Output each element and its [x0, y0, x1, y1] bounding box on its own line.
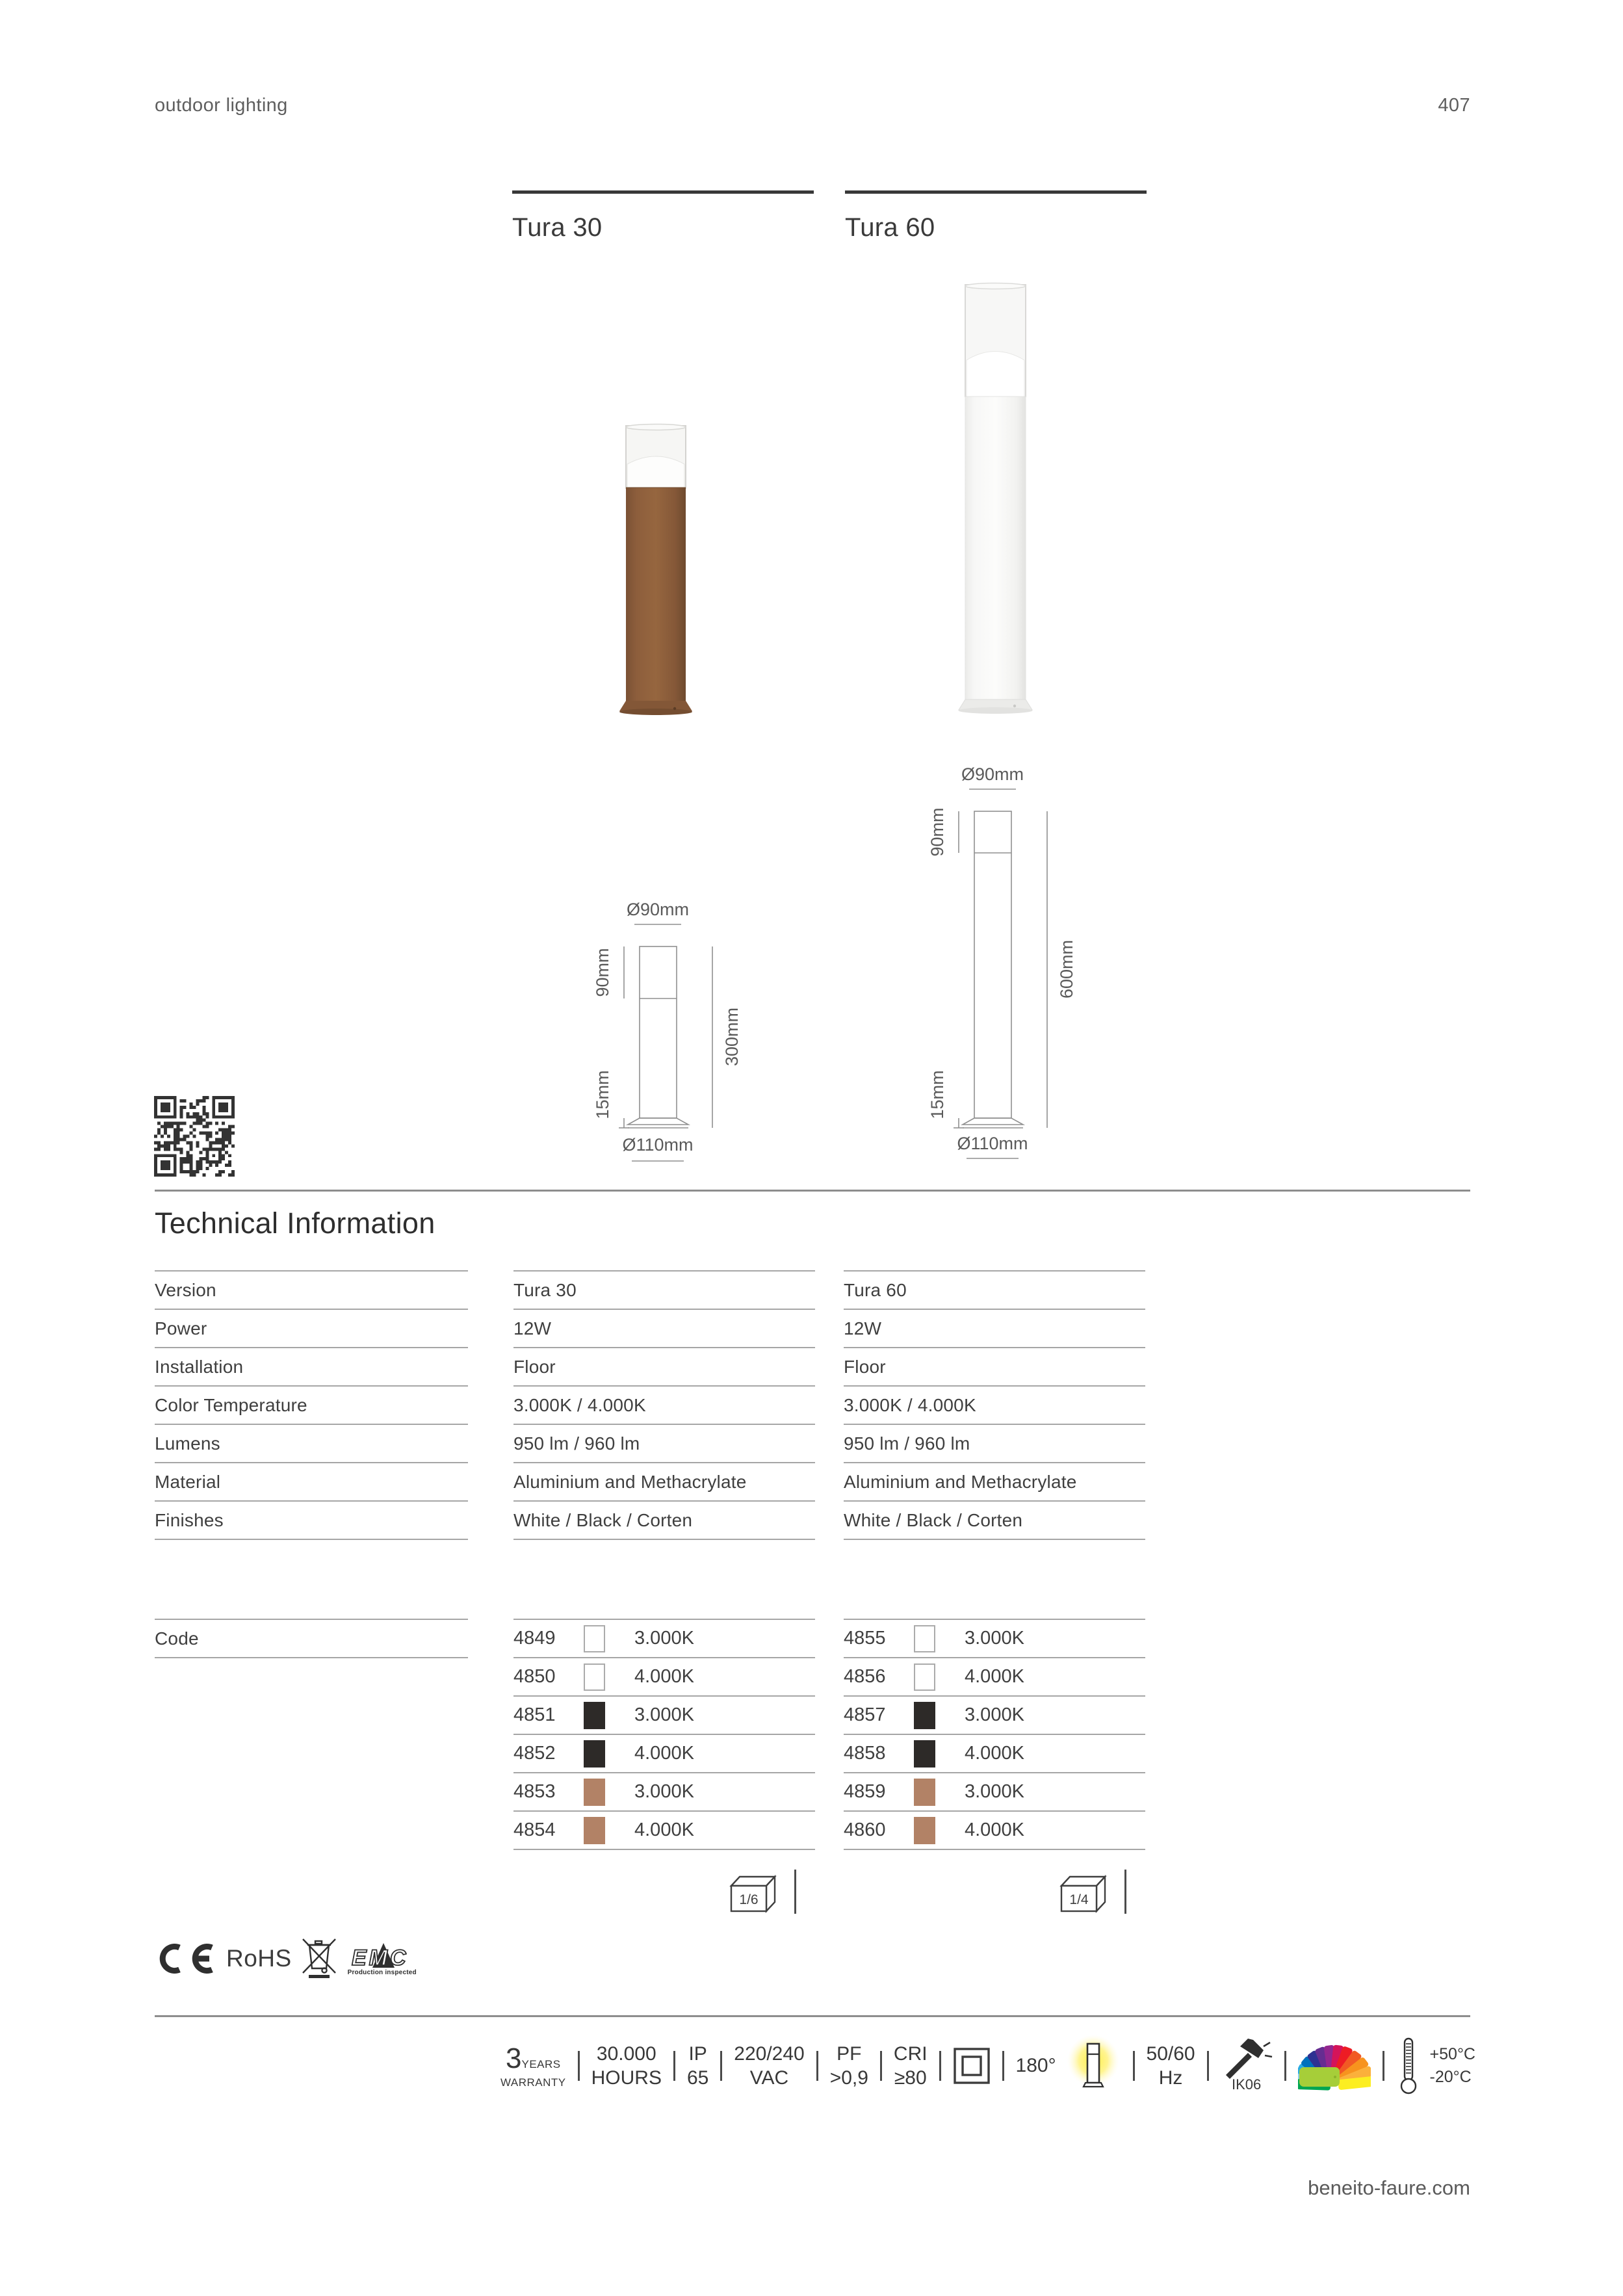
spec-value-text: Aluminium and Methacrylate: [844, 1472, 1076, 1493]
dim-height-tura30: 300mm: [722, 1008, 742, 1066]
spec-value-text: Tura 60: [844, 1280, 907, 1301]
spec-value-text: Aluminium and Methacrylate: [513, 1472, 746, 1493]
code-row: 4859 3.000K: [844, 1772, 1145, 1810]
badge-separator: [578, 2051, 580, 2081]
finish-swatch: [914, 1702, 935, 1729]
dim-height-tura60: 600mm: [1057, 940, 1076, 998]
badge-separator: [816, 2051, 818, 2081]
finish-swatch: [584, 1817, 605, 1844]
ral-color-fan-icon: [1298, 2039, 1371, 2093]
spec-label-text: Finishes: [155, 1510, 224, 1531]
power-factor-badge: PF >0,9: [830, 2042, 868, 2090]
code-label-column: Code: [155, 1619, 468, 1658]
finish-swatch: [584, 1740, 605, 1768]
badge-separator: [1207, 2051, 1209, 2081]
code-row: 4858 4.000K: [844, 1734, 1145, 1772]
code-row: 4850 4.000K: [513, 1657, 815, 1695]
code-row: 4856 4.000K: [844, 1657, 1145, 1695]
spec-value-text: 3.000K / 4.000K: [844, 1395, 976, 1416]
voltage-label: VAC: [734, 2066, 804, 2090]
code-number: 4857: [844, 1704, 914, 1726]
spec-label-material: Material: [155, 1462, 468, 1500]
spec-value: Tura 60: [844, 1270, 1145, 1309]
dimension-drawing-tura30: Ø90mm 90mm 300mm 15mm Ø110mm: [585, 889, 767, 1169]
code-temp: 3.000K: [634, 1704, 694, 1726]
qr-code-icon: [154, 1096, 235, 1177]
warranty-years: 3: [506, 2042, 521, 2074]
code-number: 4855: [844, 1628, 914, 1649]
dim-base-tura60: 15mm: [928, 1070, 947, 1119]
spec-value: 3.000K / 4.000K: [513, 1385, 815, 1424]
spec-value-text: White / Black / Corten: [844, 1510, 1022, 1531]
badge-separator: [1133, 2051, 1135, 2081]
code-temp: 3.000K: [965, 1781, 1024, 1803]
spec-label-text: Power: [155, 1318, 207, 1339]
ce-mark-icon: [155, 1943, 216, 1974]
code-row: 4849 3.000K: [513, 1619, 815, 1657]
warranty-badge: 3YEARS WARRANTY: [500, 2042, 566, 2089]
hours-value: 30.000: [591, 2042, 662, 2066]
spec-label-text: Lumens: [155, 1433, 220, 1454]
spec-value-text: 3.000K / 4.000K: [513, 1395, 646, 1416]
ip-label: IP: [687, 2042, 708, 2066]
product-title-tura30: Tura 30: [512, 213, 602, 242]
warranty-label: WARRANTY: [500, 2076, 566, 2089]
code-temp: 3.000K: [965, 1704, 1024, 1726]
product-photo-tura60: [957, 281, 1034, 718]
finish-swatch: [584, 1625, 605, 1652]
lifetime-badge: 30.000 HOURS: [591, 2042, 662, 2090]
finish-swatch: [914, 1663, 935, 1691]
ip-badge: IP 65: [687, 2042, 708, 2090]
emc-subtext: Production inspected: [348, 1969, 417, 1976]
spec-label-version: Version: [155, 1270, 468, 1309]
badge-separator: [880, 2051, 882, 2081]
thermometer-icon: [1396, 2036, 1422, 2096]
breadcrumb-category: outdoor lighting: [155, 95, 288, 116]
hours-label: HOURS: [591, 2066, 662, 2090]
code-temp: 3.000K: [634, 1628, 694, 1649]
spec-label-lumens: Lumens: [155, 1424, 468, 1462]
finish-swatch: [584, 1779, 605, 1806]
emc-logo: EMC Production inspected: [346, 1942, 418, 1976]
ik-value: IK06: [1232, 2076, 1261, 2093]
dim-top-diameter-tura30: Ø90mm: [627, 900, 689, 919]
code-number: 4849: [513, 1628, 584, 1649]
code-number: 4859: [844, 1781, 914, 1803]
code-number: 4851: [513, 1704, 584, 1726]
dim-base-diameter-tura30: Ø110mm: [622, 1135, 693, 1155]
spec-label-color-temperature: Color Temperature: [155, 1385, 468, 1424]
spec-value-text: 12W: [513, 1318, 551, 1339]
spec-value: Aluminium and Methacrylate: [844, 1462, 1145, 1500]
spec-value: Floor: [844, 1347, 1145, 1385]
pf-value: >0,9: [830, 2066, 868, 2090]
spec-value-text: White / Black / Corten: [513, 1510, 692, 1531]
pf-label: PF: [830, 2042, 868, 2066]
spec-label-text: Color Temperature: [155, 1395, 307, 1416]
cri-value: ≥80: [894, 2066, 928, 2090]
warranty-years-label: YEARS: [522, 2058, 561, 2070]
beam-angle-badge: 180°: [1016, 2035, 1121, 2097]
section-title: Technical Information: [155, 1207, 435, 1240]
finish-swatch: [914, 1817, 935, 1844]
bollard-glow-icon: [1065, 2035, 1121, 2097]
product-photo-tura30: [617, 423, 694, 718]
code-row: 4851 3.000K: [513, 1695, 815, 1734]
spec-value: Tura 30: [513, 1270, 815, 1309]
spec-label-column: Version Power Installation Color Tempera…: [155, 1270, 468, 1540]
spec-value-text: 950 lm / 960 lm: [844, 1433, 970, 1454]
ip-value: 65: [687, 2066, 708, 2090]
spec-value: 950 lm / 960 lm: [844, 1424, 1145, 1462]
voltage-value: 220/240: [734, 2042, 804, 2066]
beam-angle-value: 180°: [1016, 2055, 1056, 2077]
finish-swatch: [914, 1740, 935, 1768]
spec-value: White / Black / Corten: [844, 1500, 1145, 1539]
pack-divider-bar: [794, 1870, 796, 1914]
code-row: 4855 3.000K: [844, 1619, 1145, 1657]
temp-max: +50°C: [1430, 2043, 1475, 2066]
badge-separator: [720, 2051, 722, 2081]
finish-swatch: [584, 1702, 605, 1729]
ik-badge: IK06: [1221, 2039, 1273, 2093]
product-title-tura60: Tura 60: [845, 213, 935, 242]
code-table-tura60: 4855 3.000K 4856 4.000K 4857 3.000K 4858…: [844, 1619, 1145, 1850]
code-number: 4853: [513, 1781, 584, 1803]
code-temp: 4.000K: [634, 1743, 694, 1764]
title-rule-tura30: [512, 190, 814, 194]
section-divider-bottom: [155, 2015, 1470, 2017]
certifications-row: RoHS EMC Production inspected: [155, 1937, 418, 1980]
page-number: 407: [1321, 95, 1470, 116]
spec-value: White / Black / Corten: [513, 1500, 815, 1539]
code-row: 4852 4.000K: [513, 1734, 815, 1772]
badge-separator: [673, 2051, 675, 2081]
spec-label-text: Version: [155, 1280, 216, 1301]
spec-values-tura60: Tura 60 12W Floor 3.000K / 4.000K 950 lm…: [844, 1270, 1145, 1540]
spec-value-text: Floor: [844, 1357, 886, 1377]
badge-separator: [1284, 2051, 1286, 2081]
pack-divider-bar: [1124, 1870, 1126, 1914]
cri-label: CRI: [894, 2042, 928, 2066]
spec-value: 950 lm / 960 lm: [513, 1424, 815, 1462]
code-row: 4857 3.000K: [844, 1695, 1145, 1734]
cri-badge: CRI ≥80: [894, 2042, 928, 2090]
code-temp: 4.000K: [965, 1743, 1024, 1764]
code-temp: 4.000K: [965, 1820, 1024, 1841]
spec-value: 12W: [513, 1309, 815, 1347]
website-url: beneito-faure.com: [1145, 2176, 1470, 2200]
section-divider-top: [155, 1190, 1470, 1192]
package-box-icon-tura60: 1/4: [1059, 1875, 1110, 1914]
code-row: 4853 3.000K: [513, 1772, 815, 1810]
code-temp: 3.000K: [965, 1628, 1024, 1649]
dim-head-tura30: 90mm: [593, 948, 612, 997]
impact-hammer-icon: [1221, 2039, 1273, 2079]
catalog-page: outdoor lighting 407 Tura 30 Tura 60: [0, 0, 1623, 2296]
code-number: 4856: [844, 1666, 914, 1688]
spec-value: Aluminium and Methacrylate: [513, 1462, 815, 1500]
dim-base-diameter-tura60: Ø110mm: [957, 1134, 1028, 1153]
frequency-value: 50/60: [1147, 2042, 1195, 2066]
badge-separator: [1383, 2051, 1384, 2081]
operating-temperature-badge: +50°C -20°C: [1396, 2036, 1475, 2096]
code-table-tura30: 4849 3.000K 4850 4.000K 4851 3.000K 4852…: [513, 1619, 815, 1850]
temp-min: -20°C: [1430, 2066, 1475, 2089]
badge-separator: [939, 2051, 941, 2081]
spec-label-finishes: Finishes: [155, 1500, 468, 1539]
spec-value: Floor: [513, 1347, 815, 1385]
spec-value-text: Floor: [513, 1357, 556, 1377]
pack-ratio-tura60: 1/4: [1069, 1892, 1089, 1907]
package-box-icon-tura30: 1/6: [729, 1875, 780, 1914]
code-number: 4850: [513, 1666, 584, 1688]
dim-head-tura60: 90mm: [928, 807, 947, 856]
frequency-unit: Hz: [1147, 2066, 1195, 2090]
feature-badges-strip: 3YEARS WARRANTY 30.000 HOURS IP 65 220/2…: [500, 2031, 1475, 2101]
code-temp: 4.000K: [965, 1666, 1024, 1688]
frequency-badge: 50/60 Hz: [1147, 2042, 1195, 2090]
temperature-range: +50°C -20°C: [1430, 2043, 1475, 2089]
spec-label-text: Installation: [155, 1357, 243, 1377]
code-label-text: Code: [155, 1628, 199, 1649]
badge-separator: [1002, 2051, 1004, 2081]
weee-bin-icon: [302, 1938, 336, 1979]
dimension-drawing-tura60: Ø90mm 90mm 600mm 15mm Ø110mm: [920, 754, 1115, 1165]
dim-top-diameter-tura60: Ø90mm: [961, 764, 1024, 784]
spec-value: 3.000K / 4.000K: [844, 1385, 1145, 1424]
spec-label-power: Power: [155, 1309, 468, 1347]
spec-label-installation: Installation: [155, 1347, 468, 1385]
code-label-row: Code: [155, 1619, 468, 1657]
rohs-label: RoHS: [226, 1945, 292, 1972]
finish-swatch: [914, 1625, 935, 1652]
code-row: 4860 4.000K: [844, 1810, 1145, 1849]
finish-swatch: [914, 1779, 935, 1806]
title-rule-tura60: [845, 190, 1147, 194]
code-number: 4852: [513, 1743, 584, 1764]
voltage-badge: 220/240 VAC: [734, 2042, 804, 2090]
spec-value-text: 950 lm / 960 lm: [513, 1433, 640, 1454]
dim-base-tura30: 15mm: [593, 1070, 612, 1119]
spec-value-text: Tura 30: [513, 1280, 577, 1301]
code-temp: 4.000K: [634, 1666, 694, 1688]
spec-value-text: 12W: [844, 1318, 881, 1339]
spec-value: 12W: [844, 1309, 1145, 1347]
code-row: 4854 4.000K: [513, 1810, 815, 1849]
spec-label-text: Material: [155, 1472, 220, 1493]
code-temp: 4.000K: [634, 1820, 694, 1841]
code-number: 4860: [844, 1820, 914, 1841]
code-temp: 3.000K: [634, 1781, 694, 1803]
pack-ratio-tura30: 1/6: [739, 1892, 758, 1907]
finish-swatch: [584, 1663, 605, 1691]
emc-text: EMC: [352, 1946, 409, 1970]
emc-icon: EMC: [346, 1942, 418, 1970]
spec-values-tura30: Tura 30 12W Floor 3.000K / 4.000K 950 lm…: [513, 1270, 815, 1540]
code-number: 4858: [844, 1743, 914, 1764]
code-number: 4854: [513, 1820, 584, 1841]
class-ii-icon: [953, 2047, 991, 2085]
